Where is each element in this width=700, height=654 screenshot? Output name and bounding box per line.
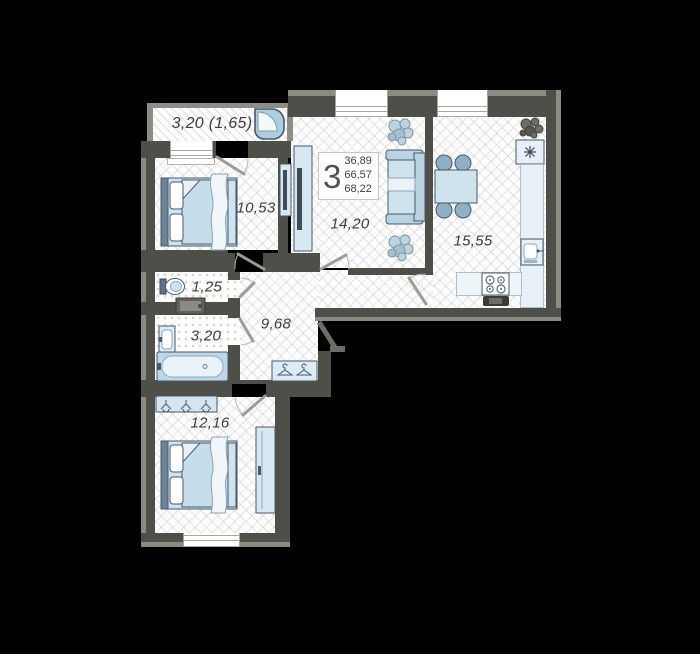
living-room-label: 14,20: [330, 216, 369, 233]
unit-area-1: 36,89: [344, 155, 372, 169]
bathroom-label: 3,20: [191, 328, 221, 345]
bedroom-top-door-leaf: [238, 254, 264, 269]
loggia-door-leaf: [217, 157, 244, 174]
entrance-door-leaf: [319, 322, 336, 349]
loggia-label: 3,20 (1,65): [172, 115, 253, 133]
bedroom-bottom-door-leaf: [243, 396, 265, 415]
wc-label: 1,25: [192, 279, 222, 296]
floor-plan: 3,20 (1,65) 10,53 14,20 15,55 1,25 3,20 …: [0, 0, 700, 654]
unit-info-box: 3 36,89 66,57 68,22: [318, 152, 379, 200]
hallway-label: 9,68: [261, 316, 291, 333]
doors-overlay: [0, 0, 700, 654]
kitchen-door-leaf: [409, 278, 426, 304]
unit-area-3: 68,22: [344, 183, 372, 197]
kitchen-label: 15,55: [453, 233, 492, 250]
living-door-leaf: [321, 255, 346, 269]
entrance-door-jamb: [330, 346, 345, 352]
bath-door-leaf: [240, 319, 253, 341]
unit-rooms-count: 3: [323, 160, 341, 193]
unit-areas: 36,89 66,57 68,22: [344, 155, 372, 196]
wc-door-leaf: [240, 283, 254, 297]
bedroom-bottom-label: 12,16: [190, 415, 229, 432]
bedroom-top-label: 10,53: [236, 200, 275, 217]
unit-area-2: 66,57: [344, 169, 372, 183]
